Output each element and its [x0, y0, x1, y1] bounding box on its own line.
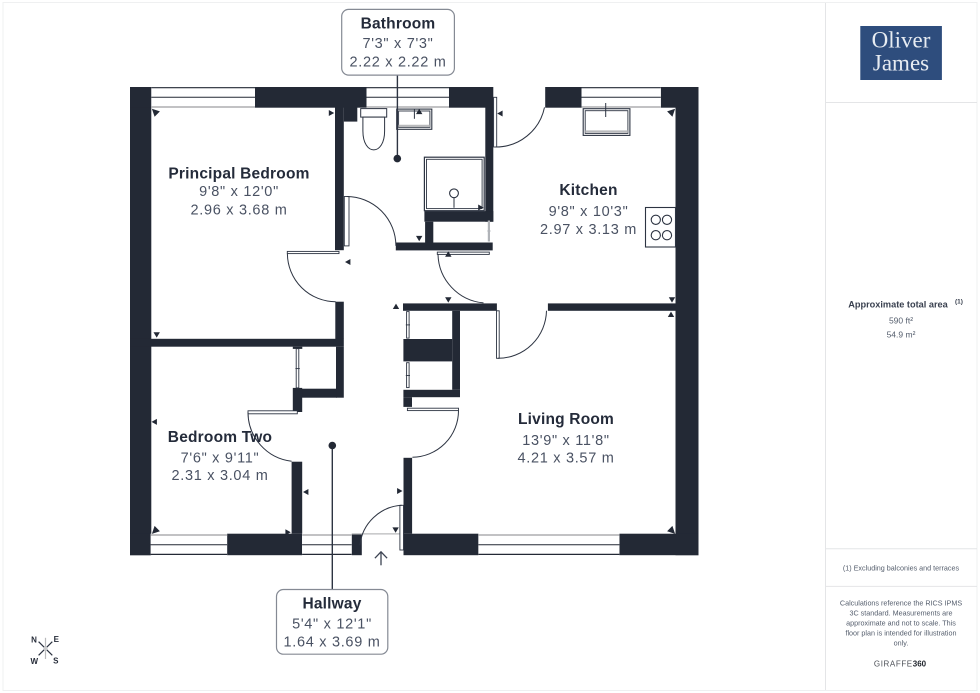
svg-text:9'8" x 10'3": 9'8" x 10'3" [549, 204, 629, 220]
svg-text:Calculations reference the RIC: Calculations reference the RICS IPMS [840, 599, 962, 608]
svg-text:Oliver: Oliver [872, 28, 931, 53]
svg-text:2.31 x 3.04 m: 2.31 x 3.04 m [172, 468, 269, 484]
svg-text:5'4" x 12'1": 5'4" x 12'1" [292, 617, 372, 633]
svg-text:James: James [873, 51, 929, 76]
svg-text:13'9" x 11'8": 13'9" x 11'8" [522, 433, 610, 449]
svg-text:Principal Bedroom: Principal Bedroom [168, 166, 309, 183]
svg-text:7'6" x 9'11": 7'6" x 9'11" [181, 450, 260, 466]
svg-text:Hallway: Hallway [302, 596, 361, 613]
svg-text:Kitchen: Kitchen [559, 182, 617, 199]
svg-text:S: S [53, 657, 59, 666]
svg-text:(1): (1) [955, 299, 963, 306]
svg-text:approximate and not to scale.: approximate and not to scale. This [846, 619, 956, 628]
svg-text:590 ft²: 590 ft² [889, 316, 913, 326]
svg-text:N: N [31, 635, 37, 644]
svg-text:4.21 x 3.57 m: 4.21 x 3.57 m [518, 451, 615, 467]
svg-text:Bathroom: Bathroom [361, 15, 436, 32]
svg-text:3C standard. Measurements are: 3C standard. Measurements are [849, 609, 952, 618]
svg-text:Bedroom Two: Bedroom Two [168, 429, 272, 446]
svg-text:E: E [54, 635, 60, 644]
svg-text:1.64 x 3.69 m: 1.64 x 3.69 m [284, 635, 381, 651]
svg-text:floor plan is intended for ill: floor plan is intended for illustration [845, 629, 956, 638]
svg-text:(1) Excluding balconies and te: (1) Excluding balconies and terraces [843, 564, 960, 573]
svg-text:2.97 x 3.13 m: 2.97 x 3.13 m [540, 222, 637, 238]
svg-text:54.9 m²: 54.9 m² [887, 330, 916, 340]
svg-text:2.96 x 3.68 m: 2.96 x 3.68 m [191, 203, 288, 219]
svg-text:2.22 x 2.22 m: 2.22 x 2.22 m [350, 55, 447, 71]
svg-text:Approximate total area: Approximate total area [848, 300, 948, 310]
svg-text:7'3" x 7'3": 7'3" x 7'3" [362, 36, 433, 52]
svg-text:GIRAFFE360: GIRAFFE360 [874, 660, 927, 669]
svg-text:W: W [31, 657, 39, 666]
svg-text:Living Room: Living Room [518, 411, 614, 428]
svg-text:only.: only. [894, 639, 909, 648]
svg-text:9'8" x 12'0": 9'8" x 12'0" [199, 184, 279, 200]
